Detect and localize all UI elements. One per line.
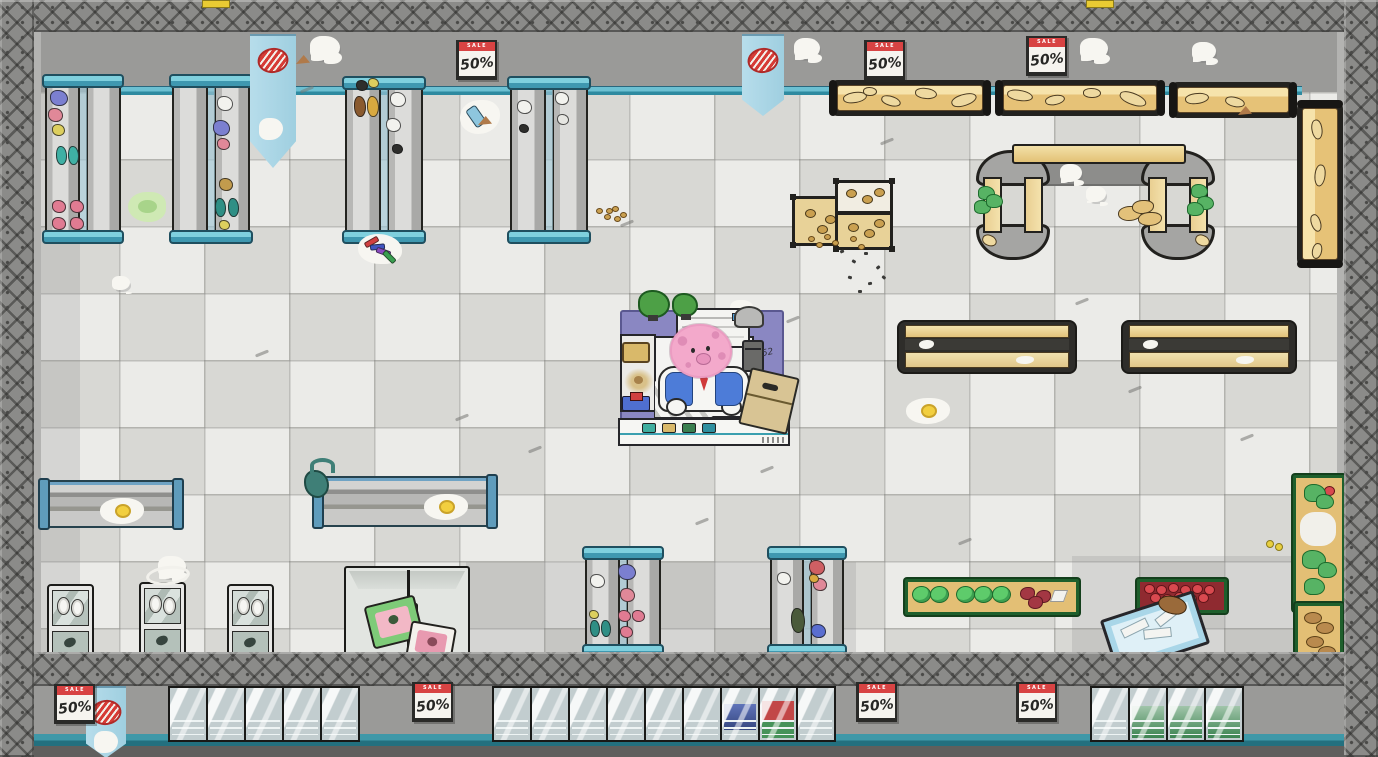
product-item	[367, 96, 379, 117]
glass-reflection	[322, 688, 358, 740]
cabbage-item	[930, 586, 949, 603]
bread-item	[1316, 622, 1334, 634]
crayon-spill[interactable]	[358, 234, 402, 264]
dirt-mark	[63, 637, 77, 649]
freezer-door[interactable]	[568, 686, 608, 742]
shelf-gap	[381, 86, 388, 234]
shelf-cap	[1289, 82, 1297, 118]
product-item	[219, 220, 230, 230]
product-item	[390, 92, 406, 107]
snout-icon	[696, 353, 711, 365]
belt-product	[662, 423, 676, 433]
frame-bottom	[0, 652, 1378, 686]
glass-reflection	[798, 688, 834, 740]
shelf-panel	[86, 80, 121, 238]
sale-sign-value: 50%	[414, 691, 452, 720]
freezer-door[interactable]	[1090, 686, 1130, 742]
shelf-cap	[983, 80, 991, 116]
dirt-mark	[243, 637, 257, 649]
crate-knob	[790, 242, 796, 248]
shelf-cap	[486, 474, 498, 529]
belt-marks	[762, 437, 784, 443]
product-item	[620, 588, 635, 602]
cashier-character[interactable]	[672, 326, 730, 376]
product-item	[392, 144, 403, 154]
stain-decal[interactable]	[624, 368, 654, 395]
product-item	[219, 178, 233, 191]
plant-icon	[638, 290, 670, 318]
sale-sign: SALE 50%	[412, 682, 453, 722]
shelf-cap	[169, 230, 253, 244]
freezer-door[interactable]	[244, 686, 284, 742]
greens-item	[1187, 202, 1204, 216]
crumbs[interactable]	[594, 204, 624, 224]
cabbage-item	[912, 586, 931, 603]
cabbage-item	[992, 586, 1011, 603]
fridge-glass	[52, 590, 89, 626]
shelf-cap	[829, 80, 837, 116]
no-entry-icon	[256, 46, 290, 75]
shelf-panel	[585, 552, 620, 652]
speck-item	[876, 265, 881, 269]
bakery-band	[1129, 352, 1289, 368]
speck-item	[840, 249, 845, 253]
glass-reflection	[246, 688, 282, 740]
product-item	[56, 146, 67, 165]
product-item	[589, 610, 599, 619]
cabbage-item	[956, 586, 975, 603]
crumb-item	[832, 240, 839, 246]
no-entry-banner	[250, 34, 296, 168]
speck-item	[882, 275, 887, 279]
crumb-item	[808, 236, 815, 242]
bakery-shelf[interactable]	[829, 80, 991, 116]
no-entry-banner	[742, 34, 784, 116]
shelf-panel	[770, 552, 804, 652]
dirt-splat	[259, 118, 283, 140]
product-item	[52, 217, 66, 230]
cashier-arm	[721, 398, 742, 416]
cashier-arm	[666, 398, 687, 416]
product-item	[50, 90, 68, 106]
eye-icon	[706, 346, 710, 351]
crumb-item	[850, 236, 857, 242]
crumb-item	[612, 206, 619, 212]
checkout-counter[interactable]: 52	[620, 306, 786, 446]
product-item	[228, 198, 239, 217]
glass-reflection	[1130, 688, 1166, 740]
shelf-gap	[208, 84, 215, 234]
plant-icon	[672, 293, 698, 317]
fridge[interactable]	[227, 584, 274, 662]
speck-item	[858, 290, 862, 293]
lamp-icon	[734, 306, 764, 328]
produce-display[interactable]	[905, 579, 1079, 615]
sale-sign: SALE 50%	[1016, 682, 1057, 722]
product-item	[52, 124, 65, 136]
double-door-fridge[interactable]	[344, 566, 470, 658]
empty-patch	[1300, 512, 1337, 546]
glass-reflection	[494, 688, 530, 740]
shelf-cap	[42, 230, 124, 244]
product-item	[215, 198, 226, 217]
shelf-gap	[546, 86, 553, 234]
crumb-item	[604, 214, 611, 220]
cabbage-item	[974, 586, 993, 603]
product-item	[217, 96, 233, 111]
crumb-item	[816, 242, 823, 248]
freezer-door[interactable]	[206, 686, 246, 742]
product-item	[557, 114, 569, 125]
glass-reflection	[684, 688, 720, 740]
product-item	[791, 608, 805, 633]
shelf-cap	[169, 74, 253, 88]
shelf-cap	[1297, 100, 1343, 108]
glass-reflection	[1092, 688, 1128, 740]
glass-reflection	[284, 688, 320, 740]
product-item	[811, 624, 826, 638]
product-item	[354, 96, 366, 117]
bakery-band	[905, 325, 1069, 338]
crumb-item	[596, 208, 603, 214]
arch-connector	[1012, 144, 1186, 164]
product-item	[590, 620, 600, 637]
crumb-item	[620, 212, 627, 218]
check-splat	[1016, 356, 1034, 364]
product-item	[601, 620, 611, 637]
product-item	[519, 124, 529, 133]
product-item	[213, 120, 230, 136]
bread-pile[interactable]	[1118, 200, 1164, 228]
sale-sign: SALE 50%	[856, 682, 897, 722]
freezer-door[interactable]	[796, 686, 836, 742]
shelf-gap	[1129, 339, 1289, 350]
product-item	[68, 146, 79, 165]
product-item	[356, 80, 368, 91]
vertical-shelf[interactable]	[171, 74, 251, 244]
glass-reflection	[1206, 688, 1242, 740]
left-edge-highlight	[34, 32, 41, 652]
spilled-bag[interactable]	[298, 460, 332, 496]
bread-item	[1083, 88, 1101, 98]
shelf-panel	[552, 82, 588, 238]
crate-knob	[833, 178, 839, 184]
shelf-gap	[905, 339, 1069, 350]
sale-sign: SALE 50%	[54, 684, 95, 724]
glass-reflection	[570, 688, 606, 740]
crumb-item	[606, 208, 613, 214]
frame-left	[0, 0, 34, 757]
speck-item	[868, 282, 872, 285]
product-item	[217, 138, 230, 150]
product-item	[777, 572, 791, 585]
tie-icon	[700, 374, 708, 391]
freezer-door[interactable]	[682, 686, 722, 742]
cookie-item	[862, 195, 873, 204]
product-item	[517, 100, 532, 114]
product-item	[590, 574, 605, 588]
freezer-door[interactable]	[320, 686, 360, 742]
product-item	[555, 92, 569, 105]
crate-knob	[889, 178, 895, 184]
glass-reflection	[1168, 688, 1204, 740]
shelf-cap	[1157, 80, 1165, 116]
freezer-door[interactable]	[758, 686, 798, 742]
bakery-shelf[interactable]	[995, 80, 1165, 116]
dirt-splat[interactable]	[1060, 164, 1082, 182]
fridge-glass	[232, 590, 269, 626]
vertical-shelf[interactable]	[509, 76, 589, 244]
glass-reflection	[760, 688, 796, 740]
sale-sign-value: 50%	[1028, 45, 1066, 74]
green-splat[interactable]	[128, 192, 166, 222]
cookie-item	[874, 219, 885, 228]
crumbs[interactable]	[838, 248, 890, 296]
cookie-item	[846, 189, 857, 198]
shelf-cap	[507, 76, 591, 90]
white-wedge	[1050, 590, 1068, 602]
freezer-door[interactable]	[1204, 686, 1244, 742]
check-splat	[1143, 340, 1158, 349]
bakery-shelf[interactable]	[1169, 82, 1297, 118]
freezer-door[interactable]	[606, 686, 646, 742]
milk-jug	[163, 597, 176, 615]
glass-reflection	[646, 688, 682, 740]
greens-item	[1304, 578, 1325, 595]
horizontal-shelf[interactable]	[314, 476, 496, 527]
product-item	[620, 626, 633, 638]
bakery-shelf[interactable]	[1297, 100, 1343, 268]
fridge[interactable]	[47, 584, 94, 662]
product-item	[70, 200, 84, 213]
meat-item	[1028, 596, 1043, 609]
vertical-shelf[interactable]	[44, 74, 122, 244]
product-item	[48, 108, 63, 122]
shelf-cap	[582, 546, 664, 560]
glass-reflection	[722, 688, 758, 740]
greens-item	[986, 194, 1003, 208]
freezer-door[interactable]	[492, 686, 532, 742]
product-item	[368, 78, 379, 88]
product-item	[809, 560, 825, 575]
dirt-splat	[94, 731, 118, 753]
yellow-tab	[1086, 0, 1114, 8]
sale-sign: SALE 50%	[1026, 36, 1067, 76]
glass-reflection	[170, 688, 206, 740]
crate-knob	[790, 194, 796, 200]
product-item	[632, 610, 645, 622]
glass-reflection	[532, 688, 568, 740]
shelf-cap	[172, 478, 184, 530]
shelf-cap	[767, 546, 847, 560]
toy-car-icon	[622, 396, 650, 411]
vertical-shelf[interactable]	[584, 546, 662, 658]
milk-jug	[71, 599, 84, 617]
product-item	[618, 610, 631, 622]
shelf-cap	[995, 80, 1003, 116]
crate-divider	[835, 211, 893, 215]
frame-right	[1344, 0, 1378, 757]
dirt-mark	[155, 635, 169, 647]
freezer-door[interactable]	[282, 686, 322, 742]
sale-sign-value: 50%	[458, 49, 496, 78]
cookie-item	[848, 223, 859, 232]
shelf-panel	[172, 80, 208, 238]
arch-panel	[1024, 177, 1043, 233]
product-item	[386, 118, 401, 132]
fridge[interactable]	[139, 582, 186, 660]
product-item	[70, 217, 84, 230]
speck-item	[864, 252, 868, 255]
sale-sign-value: 50%	[858, 691, 896, 720]
shelf-cap	[1169, 82, 1177, 118]
cookie-item	[805, 209, 816, 218]
dirt-splat[interactable]	[794, 38, 820, 59]
basket-icon	[622, 342, 650, 363]
speck-item	[852, 259, 857, 263]
apple-item	[1198, 593, 1209, 603]
glass-reflection	[608, 688, 644, 740]
check-splat	[919, 340, 934, 349]
glass-reflection	[208, 688, 244, 740]
freezer-door[interactable]	[168, 686, 208, 742]
sale-sign-value: 50%	[866, 49, 904, 78]
stage: 52 SALE 50%SALE 50%SALE 50%SALE 50%SALE …	[0, 0, 1378, 757]
milk-jug	[251, 599, 264, 617]
sale-sign-value: 50%	[56, 693, 94, 722]
eye-icon	[691, 348, 695, 353]
shelf-cap	[38, 478, 50, 530]
cart-item	[1143, 627, 1172, 640]
sale-sign: SALE 50%	[864, 40, 905, 80]
speck-item	[848, 276, 853, 279]
cookie-item	[874, 188, 885, 197]
product-item	[809, 574, 819, 583]
bakery-shelf-empty[interactable]	[1121, 320, 1297, 374]
shelf-cap	[1297, 260, 1343, 268]
belt-product	[682, 423, 696, 433]
check-splat	[1236, 356, 1254, 364]
crumb-item	[614, 216, 621, 222]
freezer-door[interactable]	[644, 686, 684, 742]
product-item	[618, 564, 636, 580]
milk-jug	[149, 595, 162, 613]
freezer-door[interactable]	[1166, 686, 1206, 742]
belt-product	[702, 423, 716, 433]
fridge-glass	[144, 588, 181, 624]
milk-jug	[237, 597, 250, 615]
milk-jug	[57, 597, 70, 615]
sale-sign-value: 50%	[1018, 691, 1056, 720]
bread-item	[863, 87, 877, 96]
vertical-shelf[interactable]	[769, 546, 845, 658]
no-entry-icon	[746, 46, 780, 75]
bakery-shelf-empty[interactable]	[897, 320, 1077, 374]
vertical-shelf[interactable]	[344, 76, 424, 244]
bread-arch-display[interactable]	[974, 150, 1052, 260]
freezer-door[interactable]	[1128, 686, 1168, 742]
freezer-door[interactable]	[720, 686, 760, 742]
shelf-cap	[507, 230, 591, 244]
bottom-edge	[0, 746, 1378, 757]
sale-sign: SALE 50%	[456, 40, 497, 80]
bakery-band	[905, 352, 1069, 368]
produce-display-vertical[interactable]	[1293, 475, 1345, 611]
product-item	[52, 200, 66, 213]
greens-item	[1318, 562, 1337, 578]
freezer-door[interactable]	[530, 686, 570, 742]
yellow-bits[interactable]	[1266, 540, 1282, 550]
shelf-cap	[342, 76, 426, 90]
crumb-item	[824, 234, 831, 240]
yellow-tab	[202, 0, 230, 8]
shelf-cap	[42, 74, 124, 88]
bakery-band	[1129, 325, 1289, 338]
belt-product	[642, 423, 656, 433]
greens-item	[1316, 494, 1334, 509]
